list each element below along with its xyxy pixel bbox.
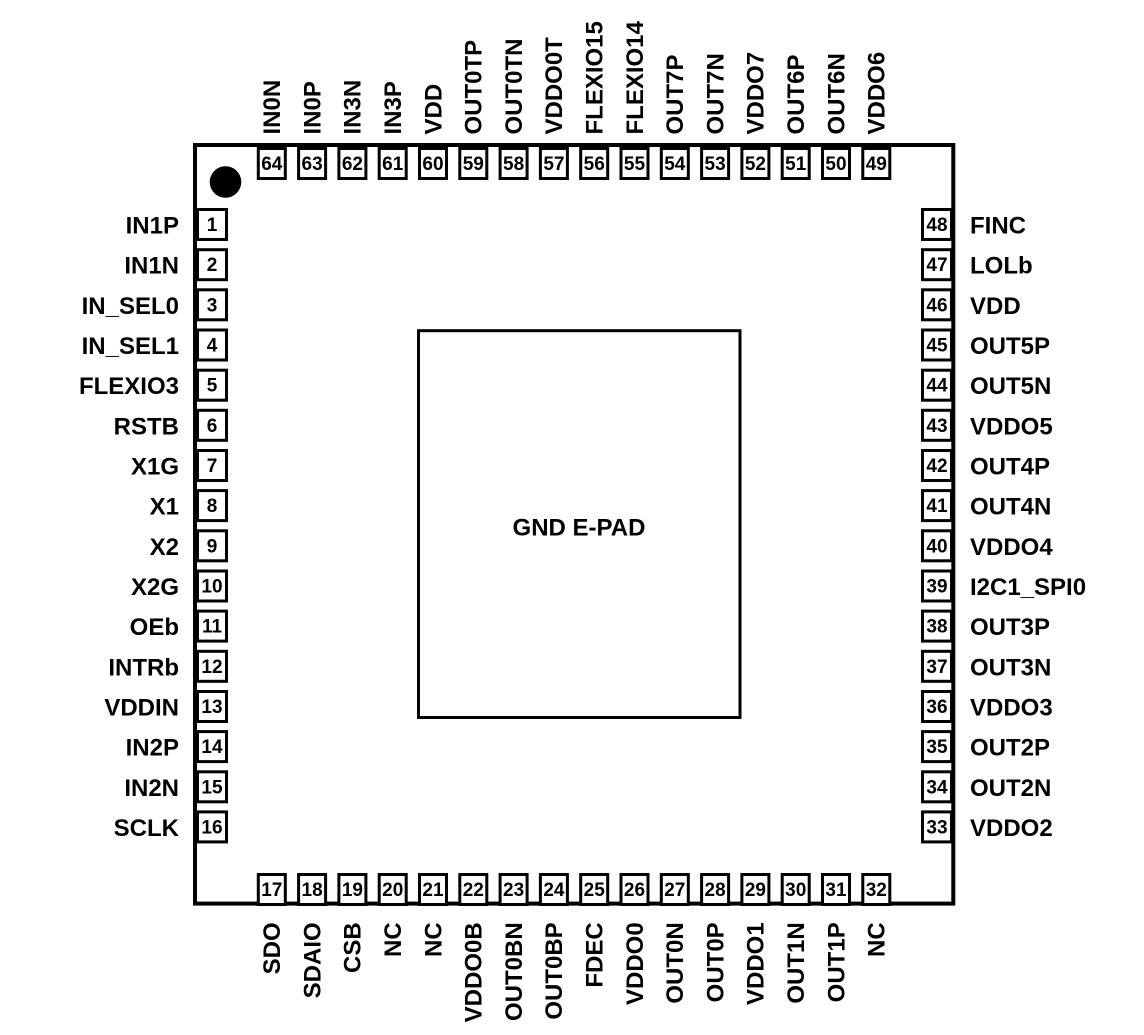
svg-text:IN2P: IN2P: [126, 735, 179, 762]
svg-text:9: 9: [207, 536, 218, 557]
svg-text:7: 7: [207, 456, 218, 477]
svg-text:VDDIN: VDDIN: [104, 695, 179, 722]
svg-text:VDDO2: VDDO2: [970, 815, 1053, 842]
svg-text:2: 2: [207, 255, 218, 276]
svg-text:OUT5N: OUT5N: [970, 373, 1051, 400]
svg-text:IN2N: IN2N: [124, 775, 179, 802]
svg-text:42: 42: [926, 456, 947, 477]
svg-text:FDEC: FDEC: [582, 922, 609, 987]
svg-text:SDO: SDO: [259, 922, 286, 974]
svg-text:OUT0TP: OUT0TP: [461, 40, 488, 135]
svg-text:VDD: VDD: [970, 293, 1021, 320]
svg-text:VDDO1: VDDO1: [743, 922, 770, 1005]
svg-text:14: 14: [201, 737, 223, 758]
svg-text:18: 18: [302, 880, 323, 901]
svg-text:CSB: CSB: [340, 922, 367, 973]
svg-text:8: 8: [207, 496, 218, 517]
svg-text:31: 31: [825, 880, 847, 901]
svg-text:OUT4N: OUT4N: [970, 494, 1051, 521]
svg-text:51: 51: [785, 154, 807, 175]
svg-text:53: 53: [705, 154, 726, 175]
svg-text:X1G: X1G: [131, 454, 179, 481]
svg-text:LOLb: LOLb: [970, 253, 1033, 280]
svg-text:NC: NC: [864, 922, 891, 957]
svg-text:22: 22: [463, 880, 484, 901]
svg-text:47: 47: [926, 255, 947, 276]
svg-text:4: 4: [207, 336, 218, 357]
svg-text:IN1N: IN1N: [124, 253, 179, 280]
svg-text:30: 30: [785, 880, 806, 901]
svg-text:OUT6N: OUT6N: [823, 53, 850, 134]
svg-text:OUT7N: OUT7N: [702, 53, 729, 134]
svg-text:FLEXIO14: FLEXIO14: [622, 20, 649, 134]
svg-text:54: 54: [664, 154, 686, 175]
svg-text:19: 19: [342, 880, 363, 901]
svg-text:49: 49: [866, 154, 887, 175]
svg-text:X1: X1: [150, 494, 179, 521]
svg-text:VDDO3: VDDO3: [970, 695, 1053, 722]
svg-text:56: 56: [584, 154, 605, 175]
svg-text:35: 35: [926, 737, 948, 758]
svg-text:61: 61: [382, 154, 404, 175]
svg-text:25: 25: [584, 880, 606, 901]
svg-text:INTRb: INTRb: [108, 654, 179, 681]
svg-text:23: 23: [503, 880, 524, 901]
svg-text:OUT5P: OUT5P: [970, 333, 1050, 360]
svg-text:32: 32: [866, 880, 887, 901]
svg-text:OUT1N: OUT1N: [783, 922, 810, 1003]
svg-text:45: 45: [926, 336, 948, 357]
svg-text:34: 34: [926, 777, 948, 798]
svg-text:VDDO7: VDDO7: [743, 52, 770, 135]
svg-text:FLEXIO15: FLEXIO15: [582, 21, 609, 134]
svg-text:44: 44: [926, 376, 948, 397]
svg-text:IN0P: IN0P: [299, 81, 326, 134]
svg-text:57: 57: [543, 154, 564, 175]
svg-text:OUT4P: OUT4P: [970, 454, 1050, 481]
svg-text:26: 26: [624, 880, 645, 901]
svg-text:VDDO4: VDDO4: [970, 534, 1053, 561]
svg-text:FINC: FINC: [970, 213, 1026, 240]
svg-text:58: 58: [503, 154, 524, 175]
svg-text:OUT3N: OUT3N: [970, 654, 1051, 681]
svg-text:IN3N: IN3N: [340, 80, 367, 135]
svg-text:28: 28: [705, 880, 726, 901]
svg-text:I2C1_SPI0: I2C1_SPI0: [970, 574, 1086, 601]
svg-text:OEb: OEb: [130, 614, 179, 641]
svg-text:X2: X2: [150, 534, 179, 561]
svg-text:IN0N: IN0N: [259, 80, 286, 135]
svg-text:55: 55: [624, 154, 646, 175]
svg-text:SDAIO: SDAIO: [299, 922, 326, 998]
svg-text:VDDO5: VDDO5: [970, 413, 1053, 440]
svg-text:3: 3: [207, 295, 218, 316]
svg-text:41: 41: [926, 496, 948, 517]
svg-text:10: 10: [201, 577, 222, 598]
svg-text:11: 11: [202, 617, 223, 638]
svg-text:VDDO0B: VDDO0B: [461, 922, 488, 1022]
svg-text:FLEXIO3: FLEXIO3: [79, 373, 179, 400]
svg-text:50: 50: [825, 154, 846, 175]
svg-text:VDD: VDD: [420, 84, 447, 135]
svg-text:OUT0BN: OUT0BN: [501, 922, 528, 1021]
svg-text:OUT6P: OUT6P: [783, 54, 810, 134]
svg-text:VDDO6: VDDO6: [864, 52, 891, 135]
svg-text:38: 38: [926, 617, 947, 638]
svg-text:OUT2P: OUT2P: [970, 735, 1050, 762]
svg-text:63: 63: [302, 154, 323, 175]
svg-text:12: 12: [201, 657, 222, 678]
svg-text:OUT0BP: OUT0BP: [541, 922, 568, 1019]
svg-text:27: 27: [664, 880, 685, 901]
svg-text:64: 64: [261, 154, 283, 175]
svg-text:16: 16: [201, 817, 222, 838]
svg-text:20: 20: [382, 880, 403, 901]
svg-text:OUT0N: OUT0N: [662, 922, 689, 1003]
svg-text:13: 13: [201, 697, 222, 718]
svg-text:OUT2N: OUT2N: [970, 775, 1051, 802]
svg-text:RSTB: RSTB: [114, 413, 179, 440]
svg-text:6: 6: [207, 416, 218, 437]
svg-text:SCLK: SCLK: [114, 815, 180, 842]
svg-text:52: 52: [745, 154, 766, 175]
svg-text:VDDO0T: VDDO0T: [541, 37, 568, 135]
svg-text:46: 46: [926, 295, 947, 316]
svg-text:36: 36: [926, 697, 947, 718]
svg-text:17: 17: [261, 880, 282, 901]
svg-text:OUT3P: OUT3P: [970, 614, 1050, 641]
svg-text:IN1P: IN1P: [126, 213, 179, 240]
svg-text:IN_SEL0: IN_SEL0: [82, 293, 179, 320]
svg-text:VDDO0: VDDO0: [622, 922, 649, 1005]
svg-text:39: 39: [926, 577, 947, 598]
svg-text:OUT0P: OUT0P: [702, 922, 729, 1002]
svg-text:5: 5: [207, 376, 218, 397]
svg-text:OUT0TN: OUT0TN: [501, 39, 528, 135]
svg-text:15: 15: [201, 777, 223, 798]
svg-text:33: 33: [926, 817, 947, 838]
svg-text:NC: NC: [380, 922, 407, 957]
svg-text:24: 24: [543, 880, 565, 901]
svg-text:62: 62: [342, 154, 363, 175]
svg-text:43: 43: [926, 416, 947, 437]
svg-text:OUT7P: OUT7P: [662, 54, 689, 134]
svg-text:OUT1P: OUT1P: [823, 922, 850, 1002]
svg-text:GND E-PAD: GND E-PAD: [513, 515, 646, 542]
svg-text:21: 21: [422, 880, 444, 901]
svg-text:X2G: X2G: [131, 574, 179, 601]
svg-text:60: 60: [422, 154, 443, 175]
svg-text:40: 40: [926, 536, 947, 557]
svg-text:37: 37: [926, 657, 947, 678]
svg-text:IN_SEL1: IN_SEL1: [82, 333, 179, 360]
svg-text:1: 1: [207, 215, 218, 236]
svg-text:48: 48: [926, 215, 947, 236]
svg-text:59: 59: [463, 154, 484, 175]
svg-text:NC: NC: [420, 922, 447, 957]
svg-text:IN3P: IN3P: [380, 81, 407, 134]
svg-text:29: 29: [745, 880, 766, 901]
